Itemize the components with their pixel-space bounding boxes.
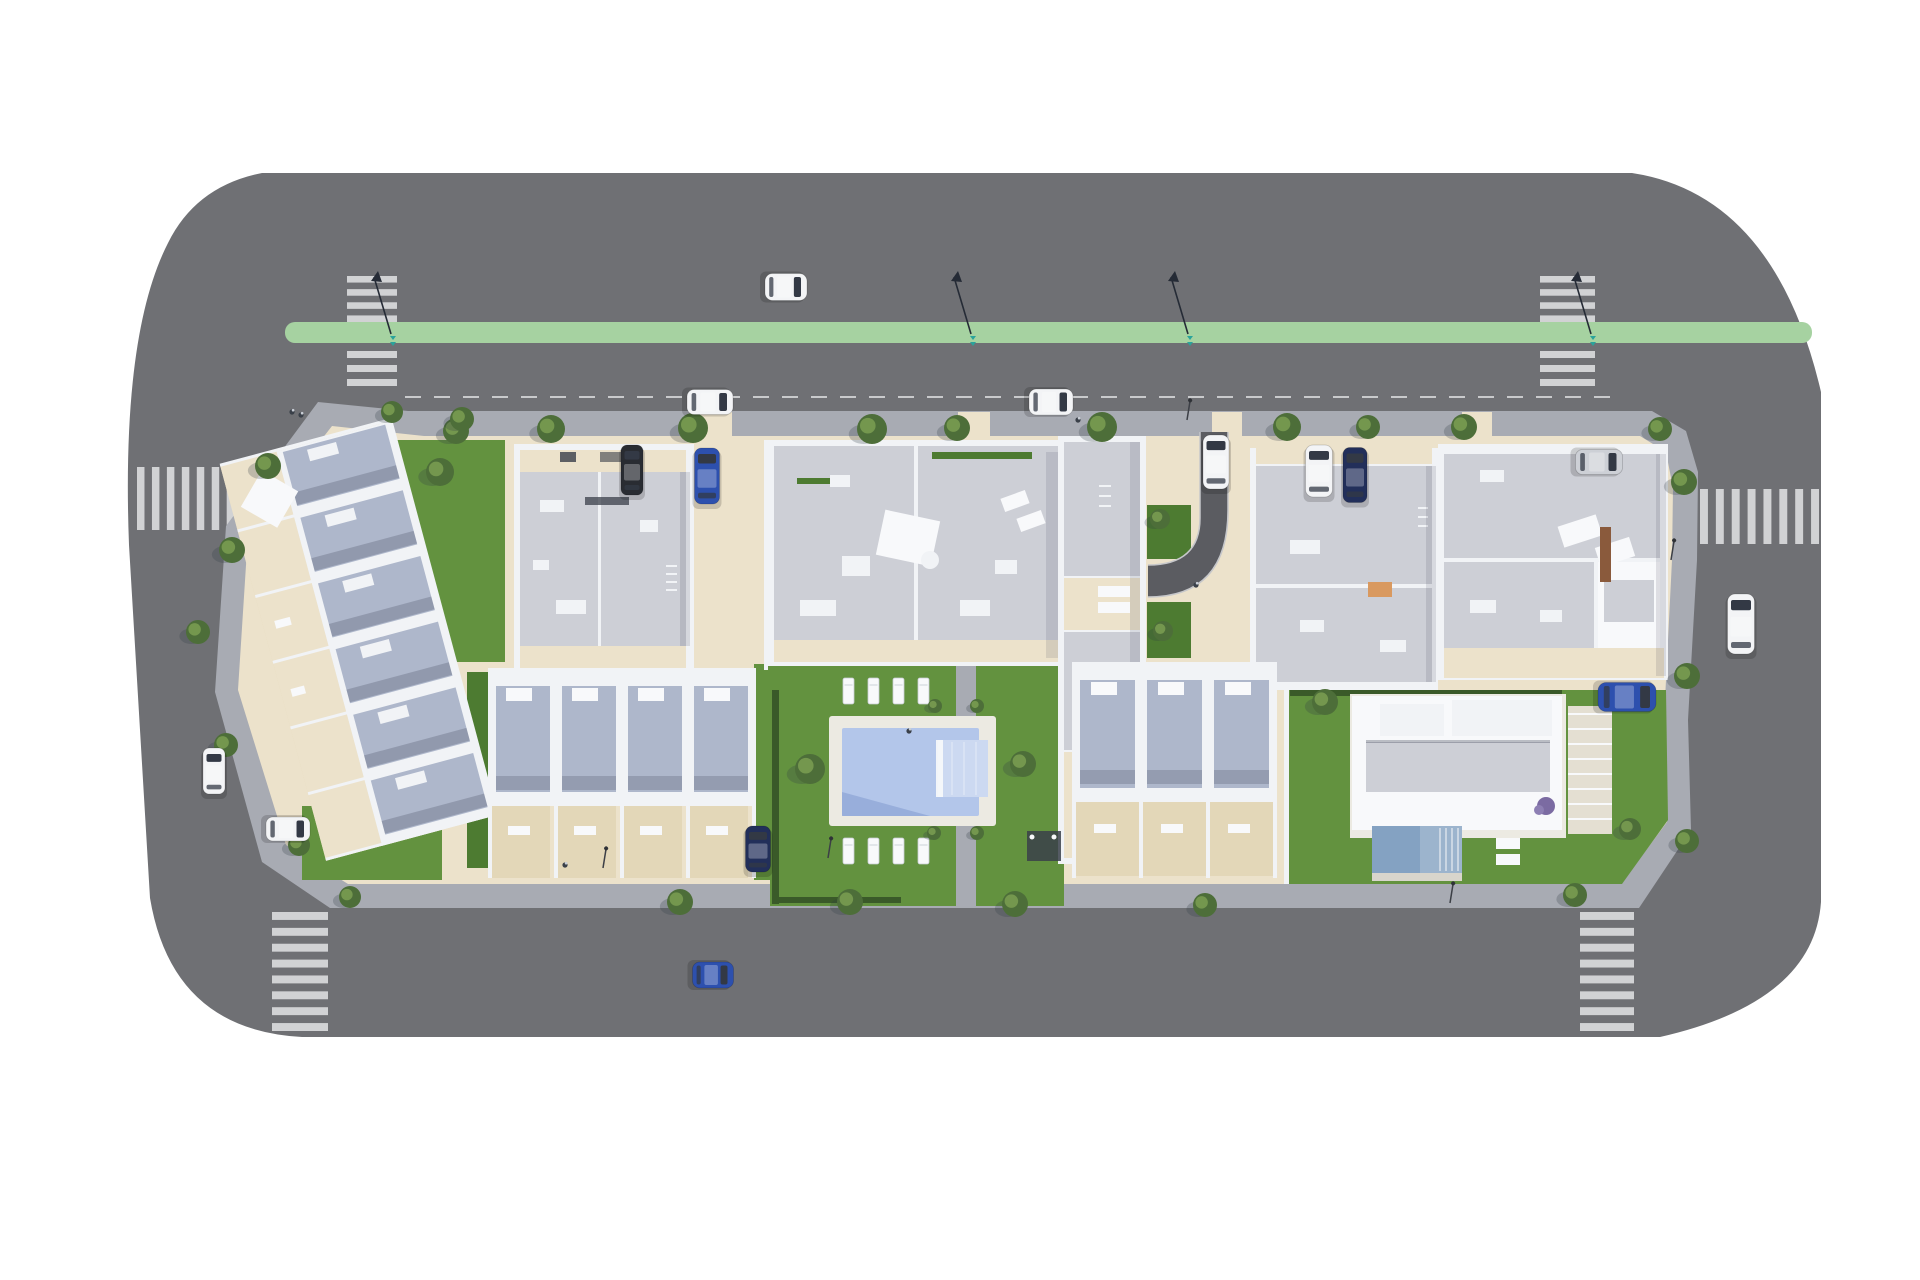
car bbox=[1201, 435, 1231, 494]
sun-lounger bbox=[893, 678, 904, 704]
sun-lounger bbox=[918, 678, 929, 704]
crosswalk bbox=[347, 351, 397, 386]
car bbox=[619, 445, 645, 500]
sun-lounger bbox=[843, 678, 854, 704]
apartment-central bbox=[768, 440, 1064, 666]
apartment-east-2 bbox=[1438, 444, 1668, 680]
rowhouses-south-west bbox=[488, 668, 756, 878]
car bbox=[682, 388, 733, 417]
car bbox=[693, 448, 722, 509]
car bbox=[760, 272, 807, 303]
rowhouses-south-east bbox=[1072, 662, 1277, 878]
scene-root bbox=[128, 173, 1821, 1037]
car bbox=[1341, 448, 1369, 508]
car bbox=[1304, 445, 1335, 502]
aerial-site-plan-svg bbox=[0, 0, 1920, 1280]
sun-lounger bbox=[918, 838, 929, 864]
car bbox=[261, 815, 310, 843]
car bbox=[1593, 681, 1656, 714]
car bbox=[688, 960, 734, 990]
car bbox=[744, 826, 773, 877]
sun-lounger bbox=[868, 838, 879, 864]
site-plan-rendering bbox=[0, 0, 1920, 1280]
car bbox=[201, 748, 227, 799]
sun-lounger bbox=[843, 838, 854, 864]
car bbox=[1571, 448, 1623, 477]
crosswalk bbox=[1540, 351, 1595, 386]
sun-lounger bbox=[868, 678, 879, 704]
car bbox=[1726, 594, 1757, 659]
car bbox=[1024, 387, 1073, 417]
sun-lounger bbox=[893, 838, 904, 864]
